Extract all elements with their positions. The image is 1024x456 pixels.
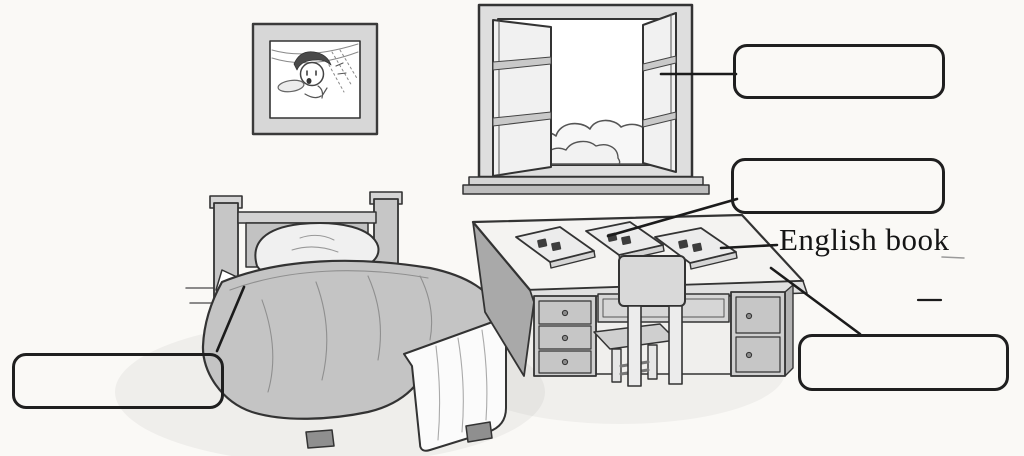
worksheet-page: English book: [0, 0, 1024, 456]
window-sill: [463, 177, 709, 194]
answer-box-book[interactable]: [731, 158, 945, 214]
answer-box-desk[interactable]: [798, 334, 1009, 391]
window-left-pane: [493, 20, 551, 176]
answer-box-bed[interactable]: [12, 353, 224, 409]
window: [463, 5, 709, 194]
bed-foot-right: [466, 422, 492, 442]
desk-right-pedestal: [731, 285, 793, 376]
english-book-label: English book: [779, 222, 949, 258]
picture-frame: [253, 24, 377, 134]
window-right-pane: [643, 13, 676, 172]
desk-left-pedestal: [534, 296, 596, 376]
bed-foot-left: [306, 430, 334, 448]
answer-box-window[interactable]: [733, 44, 945, 99]
